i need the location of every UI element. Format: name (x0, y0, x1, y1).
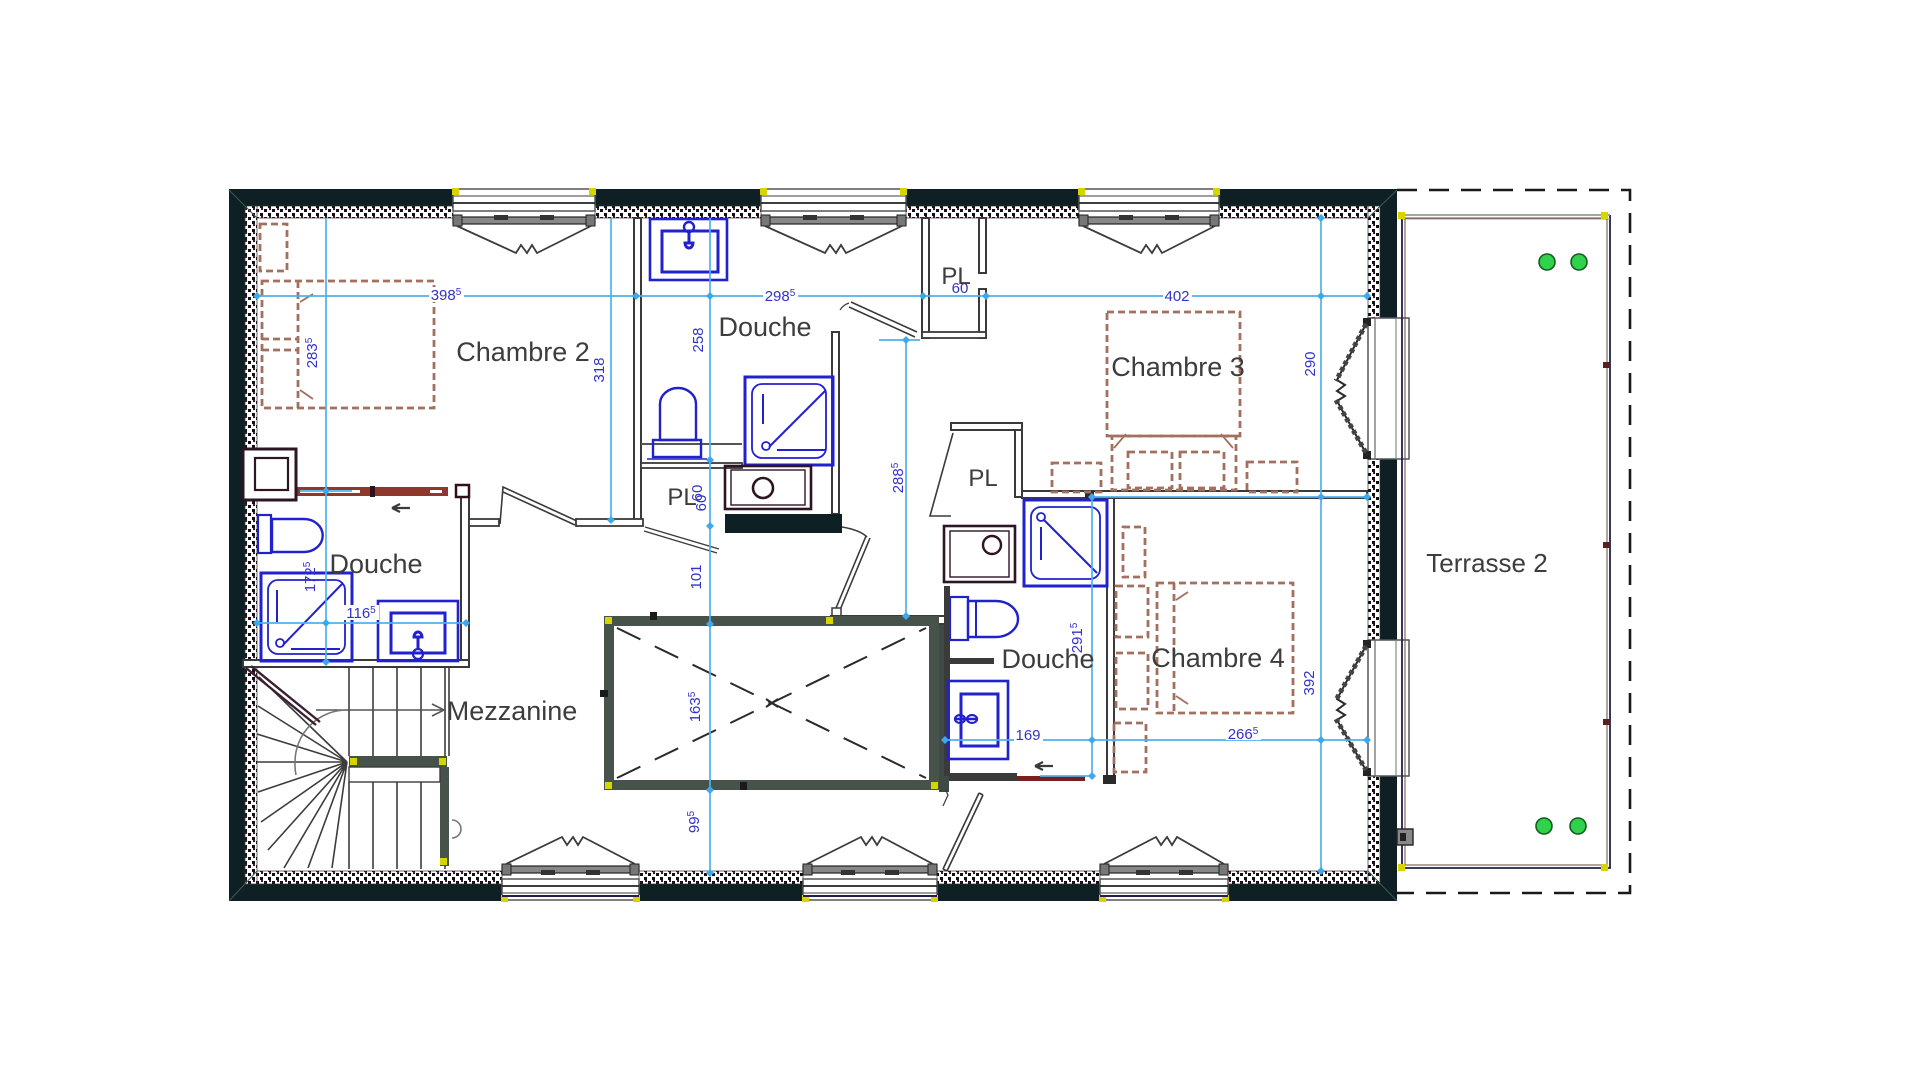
svg-text:402: 402 (1164, 288, 1189, 305)
svg-text:169: 169 (1015, 727, 1040, 744)
svg-text:Douche: Douche (1001, 644, 1094, 674)
svg-text:Douche: Douche (329, 549, 422, 579)
svg-text:101: 101 (688, 564, 705, 589)
svg-text:Chambre 2: Chambre 2 (456, 337, 590, 367)
svg-text:Mezzanine: Mezzanine (447, 696, 578, 726)
svg-text:60: 60 (693, 495, 710, 512)
svg-text:392: 392 (1301, 670, 1318, 695)
svg-text:318: 318 (591, 357, 608, 382)
svg-text:258: 258 (690, 327, 707, 352)
svg-text:PL: PL (968, 465, 997, 492)
svg-text:Terrasse 2: Terrasse 2 (1426, 548, 1547, 578)
svg-text:Chambre 3: Chambre 3 (1111, 352, 1245, 382)
svg-text:Chambre 4: Chambre 4 (1151, 643, 1285, 673)
svg-text:PL: PL (941, 263, 970, 290)
svg-text:Douche: Douche (718, 312, 811, 342)
svg-text:290: 290 (1302, 351, 1319, 376)
